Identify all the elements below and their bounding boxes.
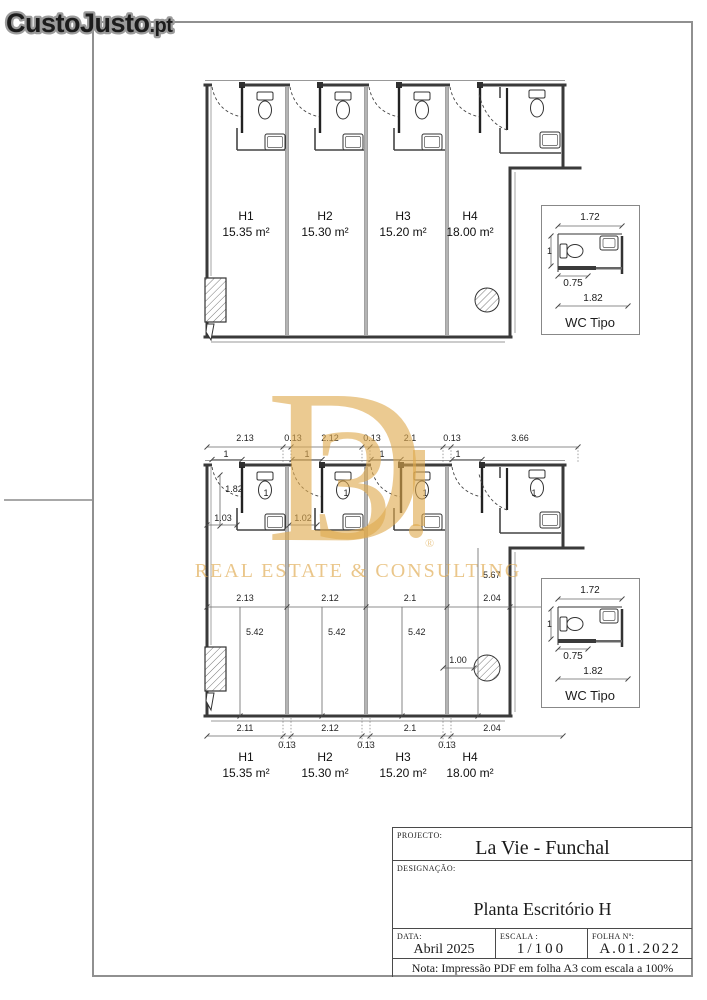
dim-label: 0.13 [284, 433, 302, 443]
dim-label: 1.82 [583, 293, 603, 304]
dim-label: 1 [379, 449, 384, 459]
room-label: H1 [238, 209, 254, 223]
column-circle [475, 288, 499, 312]
dim-label: 1 [547, 246, 552, 256]
top-plan-fixtures [205, 87, 561, 340]
room-area-label: 15.20 m² [379, 766, 426, 780]
dim-label: 5.42 [328, 627, 346, 637]
toilet-symbol [560, 244, 583, 258]
room-label: H3 [395, 750, 411, 764]
dim-label: 1.02 [294, 513, 312, 523]
dim-label: 1.82 [225, 484, 243, 494]
date-label: DATA: [397, 932, 422, 941]
custojusto-logo: CustoJusto.pt [2, 2, 212, 46]
dim-label: 1 [263, 488, 268, 498]
wc-tipo-label: WC Tipo [565, 315, 615, 330]
dim-label: 2.1 [404, 723, 417, 733]
dim-label: 2.1 [404, 593, 417, 603]
dim-label: 2.12 [321, 723, 339, 733]
designation-label: DESIGNAÇÃO: [397, 864, 456, 873]
dim-label: 1 [547, 619, 552, 629]
shaft-hatched [205, 647, 226, 691]
top-plan-walls [205, 81, 580, 343]
room-label: H2 [317, 209, 333, 223]
dim-label: 0.75 [563, 278, 583, 289]
shaft-hatched [205, 278, 226, 322]
dim-label: 1 [531, 488, 536, 498]
room-area-label: 15.20 m² [379, 225, 426, 239]
title-block: PROJECTO: La Vie - Funchal DESIGNAÇÃO: P… [392, 827, 692, 977]
title-block-designation-row: DESIGNAÇÃO: Planta Escritório H [393, 861, 692, 929]
wc-tipo-label: WC Tipo [565, 688, 615, 703]
room-label: H2 [317, 750, 333, 764]
room-label: H3 [395, 209, 411, 223]
title-block-note-row: Nota: Impressão PDF em folha A3 com esca… [393, 959, 692, 976]
top-plan-room-labels: H1 15.35 m² H2 15.30 m² H3 15.20 m² H4 1… [222, 209, 493, 239]
scale-label: ESCALA : [500, 932, 538, 941]
wc-detail-drawing: 1.72 1 0.75 1.82 [542, 206, 638, 333]
dim-label: 2.11 [237, 723, 254, 733]
dim-label: 0.13 [278, 740, 296, 750]
room-label: H4 [462, 750, 478, 764]
wc-detail-drawing: 1.72 1 0.75 1.82 [542, 579, 638, 706]
room-area-label: 18.00 m² [446, 766, 493, 780]
dim-label: 0.13 [363, 433, 381, 443]
room-label: H4 [462, 209, 478, 223]
dim-label: 1 [455, 449, 460, 459]
bottom-plan-fixtures [205, 467, 561, 710]
dim-label: 2.13 [236, 433, 254, 443]
dim-label: 2.04 [483, 723, 501, 733]
dim-label: 1.03 [214, 513, 232, 523]
floor-plan-bottom: 2.13 0.13 2.12 0.13 2.1 0.13 3.66 1 1 1 … [190, 430, 590, 790]
dim-label: 0.13 [438, 740, 456, 750]
bottom-plan-dimensions: 2.13 0.13 2.12 0.13 2.1 0.13 3.66 1 1 1 … [205, 433, 581, 750]
dim-label: 1.72 [580, 585, 600, 596]
bottom-plan-room-labels: H1 15.35 m² H2 15.30 m² H3 15.20 m² H4 1… [222, 750, 493, 780]
date-cell: DATA: Abril 2025 [393, 929, 495, 958]
bottom-plan-walls [205, 461, 583, 722]
project-label: PROJECTO: [397, 831, 442, 840]
dim-label: 1.72 [580, 212, 600, 223]
dim-label: 2.13 [236, 593, 254, 603]
toilet-symbol [560, 617, 583, 631]
title-block-project-row: PROJECTO: La Vie - Funchal [393, 828, 692, 861]
dim-label: 1 [422, 488, 427, 498]
room-area-label: 15.30 m² [301, 766, 348, 780]
wc-detail-top: 1.72 1 0.75 1.82 [541, 205, 640, 335]
room-area-label: 18.00 m² [446, 225, 493, 239]
dim-label: 1 [223, 449, 228, 459]
floor-plan-top: H1 15.35 m² H2 15.30 m² H3 15.20 m² H4 1… [195, 78, 585, 368]
dim-label: 2.12 [321, 433, 339, 443]
drawing-sheet: CustoJusto.pt [0, 0, 707, 1000]
dim-label: 1.82 [583, 666, 603, 677]
dim-label: 2.12 [321, 593, 339, 603]
dim-label: 5.67 [483, 570, 501, 580]
dim-label: 0.13 [443, 433, 461, 443]
room-area-label: 15.30 m² [301, 225, 348, 239]
sheet-number-cell: FOLHA Nº: A.01.2022 [587, 929, 692, 958]
dim-label: 1 [343, 488, 348, 498]
logo-text: CustoJusto.pt [6, 8, 173, 38]
dim-label: 0.75 [563, 651, 583, 662]
title-block-meta-row: DATA: Abril 2025 ESCALA : 1/100 FOLHA Nº… [393, 929, 692, 959]
dim-label: 2.1 [404, 433, 417, 443]
dim-label: 1 [304, 449, 309, 459]
dim-label: 5.42 [246, 627, 264, 637]
note-text: Nota: Impressão PDF em folha A3 com esca… [393, 959, 692, 976]
sheet-number-label: FOLHA Nº: [592, 932, 634, 941]
dim-label: 0.13 [357, 740, 375, 750]
dim-label: 3.66 [511, 433, 529, 443]
fold-mark-line [4, 499, 92, 501]
room-label: H1 [238, 750, 254, 764]
scale-cell: ESCALA : 1/100 [495, 929, 587, 958]
dim-label: 1.00 [449, 655, 467, 665]
dim-label: 2.04 [483, 593, 501, 603]
dim-label: 5.42 [408, 627, 426, 637]
room-area-label: 15.35 m² [222, 225, 269, 239]
wc-detail-bottom: 1.72 1 0.75 1.82 [541, 578, 640, 708]
room-area-label: 15.35 m² [222, 766, 269, 780]
